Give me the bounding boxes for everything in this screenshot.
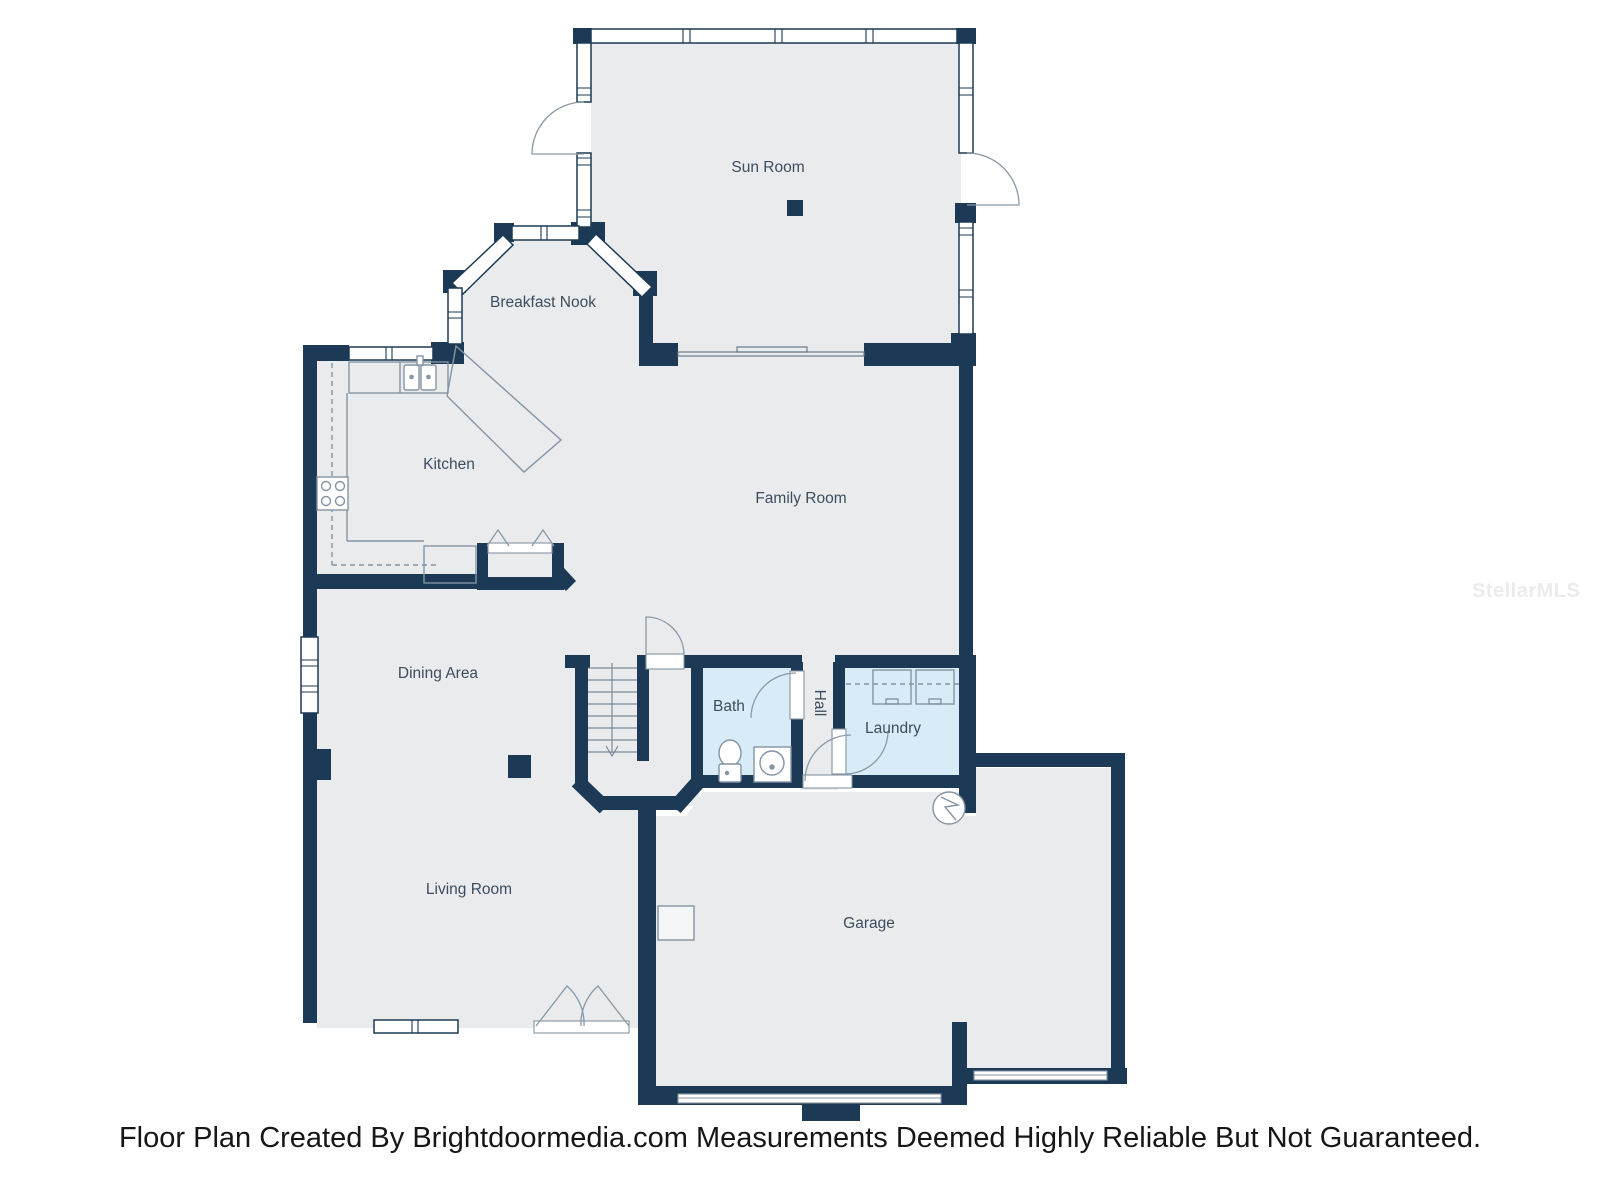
room-label-family-room: Family Room bbox=[755, 490, 846, 507]
window-nook-left bbox=[448, 288, 462, 344]
window-living bbox=[374, 1020, 458, 1033]
room-label-bath: Bath bbox=[713, 698, 745, 715]
bath-sink-icon bbox=[754, 747, 791, 782]
room-label-living-room: Living Room bbox=[426, 881, 512, 898]
door-leaf-bath bbox=[790, 671, 804, 719]
water-heater-icon bbox=[933, 792, 965, 824]
door-arc-sun-left bbox=[532, 102, 584, 154]
door-leaf-stairs bbox=[646, 654, 684, 669]
room-label-dining-area: Dining Area bbox=[398, 665, 479, 682]
window-nook-top bbox=[512, 226, 579, 240]
window-sun-left-upper bbox=[577, 43, 591, 102]
closet-sill bbox=[488, 543, 552, 553]
window-sun-right-lower bbox=[959, 222, 973, 334]
room-label-sun-room: Sun Room bbox=[731, 159, 804, 176]
window-sun-top bbox=[591, 29, 957, 43]
stellar-mls-watermark: StellarMLS bbox=[1472, 580, 1580, 603]
stove-icon bbox=[317, 477, 348, 510]
post-sun-room bbox=[787, 200, 803, 216]
window-sun-right-upper bbox=[959, 43, 973, 153]
door-leaf-hall-garage bbox=[803, 775, 852, 788]
window-dining bbox=[301, 637, 318, 713]
room-label-hall: Hall bbox=[811, 690, 828, 717]
floor-plan-drawing: Sun Room Breakfast Nook Kitchen Family R… bbox=[0, 0, 1600, 1200]
post-dining bbox=[508, 755, 531, 778]
room-label-laundry: Laundry bbox=[865, 720, 921, 737]
room-label-breakfast-nook: Breakfast Nook bbox=[490, 294, 596, 311]
door-arc-sun-right bbox=[967, 153, 1019, 205]
room-label-garage: Garage bbox=[843, 915, 895, 932]
floor-plan-page: Sun Room Breakfast Nook Kitchen Family R… bbox=[0, 0, 1600, 1200]
room-label-kitchen: Kitchen bbox=[423, 456, 475, 473]
garage-step bbox=[658, 906, 694, 940]
toilet-icon bbox=[719, 740, 741, 782]
floors bbox=[317, 40, 1113, 1088]
window-sun-left-lower bbox=[577, 153, 591, 227]
caption-text: Floor Plan Created By Brightdoormedia.co… bbox=[0, 1122, 1600, 1155]
